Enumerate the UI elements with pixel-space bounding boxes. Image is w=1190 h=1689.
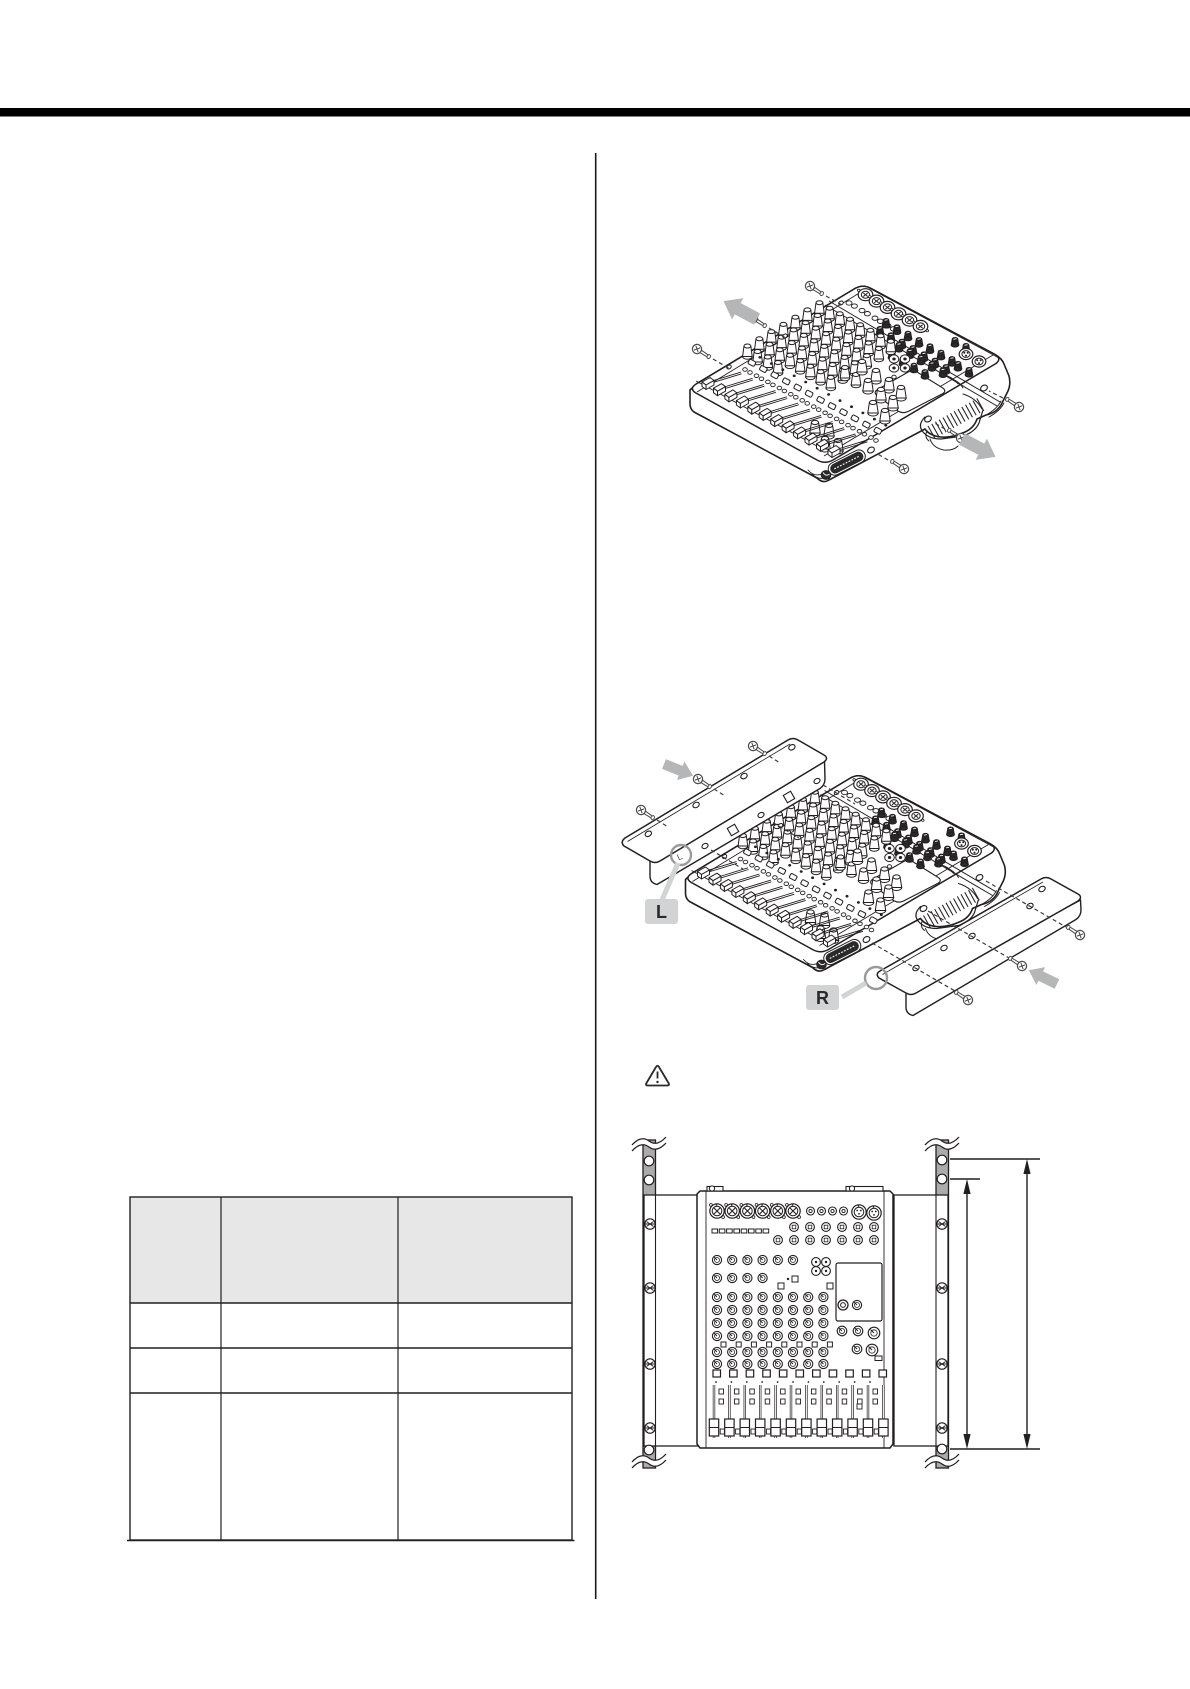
svg-text:R: R: [816, 988, 829, 1008]
svg-text:L: L: [656, 902, 667, 922]
